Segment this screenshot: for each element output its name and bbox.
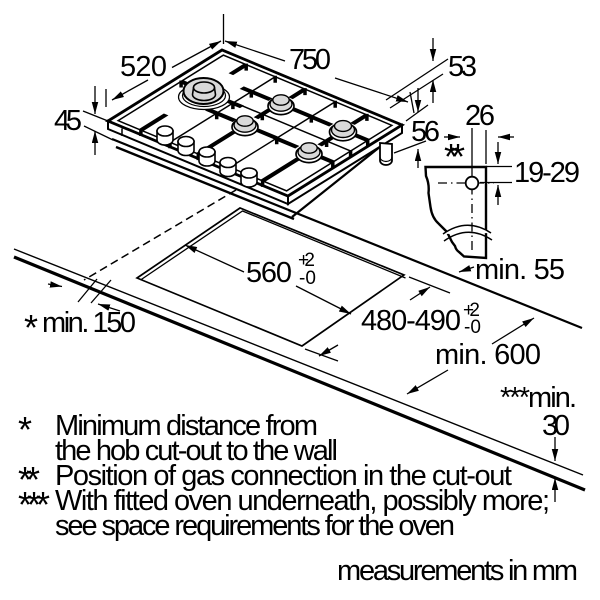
svg-text:***: *** (18, 484, 50, 525)
svg-text:-0: -0 (464, 317, 481, 338)
svg-text:min. 600: min. 600 (435, 339, 541, 371)
svg-text:750: 750 (289, 44, 331, 76)
svg-text:26: 26 (465, 100, 495, 132)
svg-text:520: 520 (120, 51, 167, 83)
svg-text:*: * (24, 307, 38, 348)
svg-text:**: ** (444, 136, 465, 177)
svg-text:45: 45 (54, 105, 82, 137)
svg-text:56: 56 (411, 116, 440, 148)
svg-text:-0: -0 (299, 268, 316, 289)
svg-text:measurements in mm: measurements in mm (337, 555, 578, 587)
svg-text:*: * (18, 409, 32, 450)
svg-text:53: 53 (448, 51, 477, 83)
svg-text:min. 55: min. 55 (475, 254, 565, 286)
svg-text:30: 30 (542, 410, 570, 442)
svg-text:480-490: 480-490 (361, 305, 461, 337)
svg-text:560: 560 (246, 257, 292, 289)
svg-text:see space requirements for the: see space requirements for the oven (55, 510, 455, 542)
svg-text:19-29: 19-29 (514, 157, 580, 189)
svg-text:min. 150: min. 150 (42, 307, 136, 339)
